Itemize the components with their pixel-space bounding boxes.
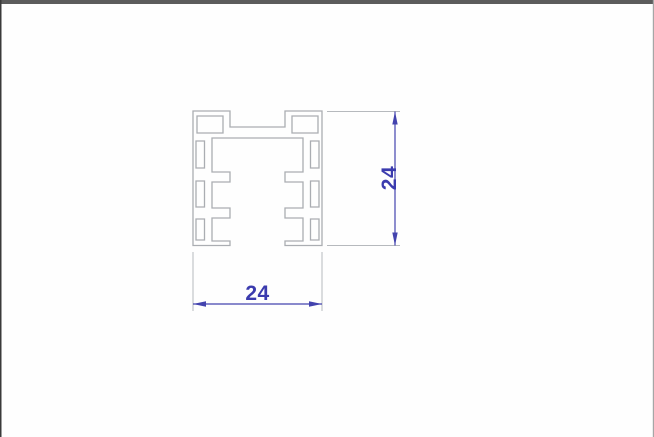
window-top-border [0,0,654,4]
profile-corner-holes [197,116,318,133]
profile-side-slots [196,141,319,240]
height-dimension-label: 24 [378,166,401,190]
cad-canvas: 24 24 [0,0,654,437]
width-dimension-label: 24 [245,282,269,305]
window-left-border [0,0,2,437]
profile-outline [193,111,322,246]
drawing-area: 24 24 [0,0,654,437]
